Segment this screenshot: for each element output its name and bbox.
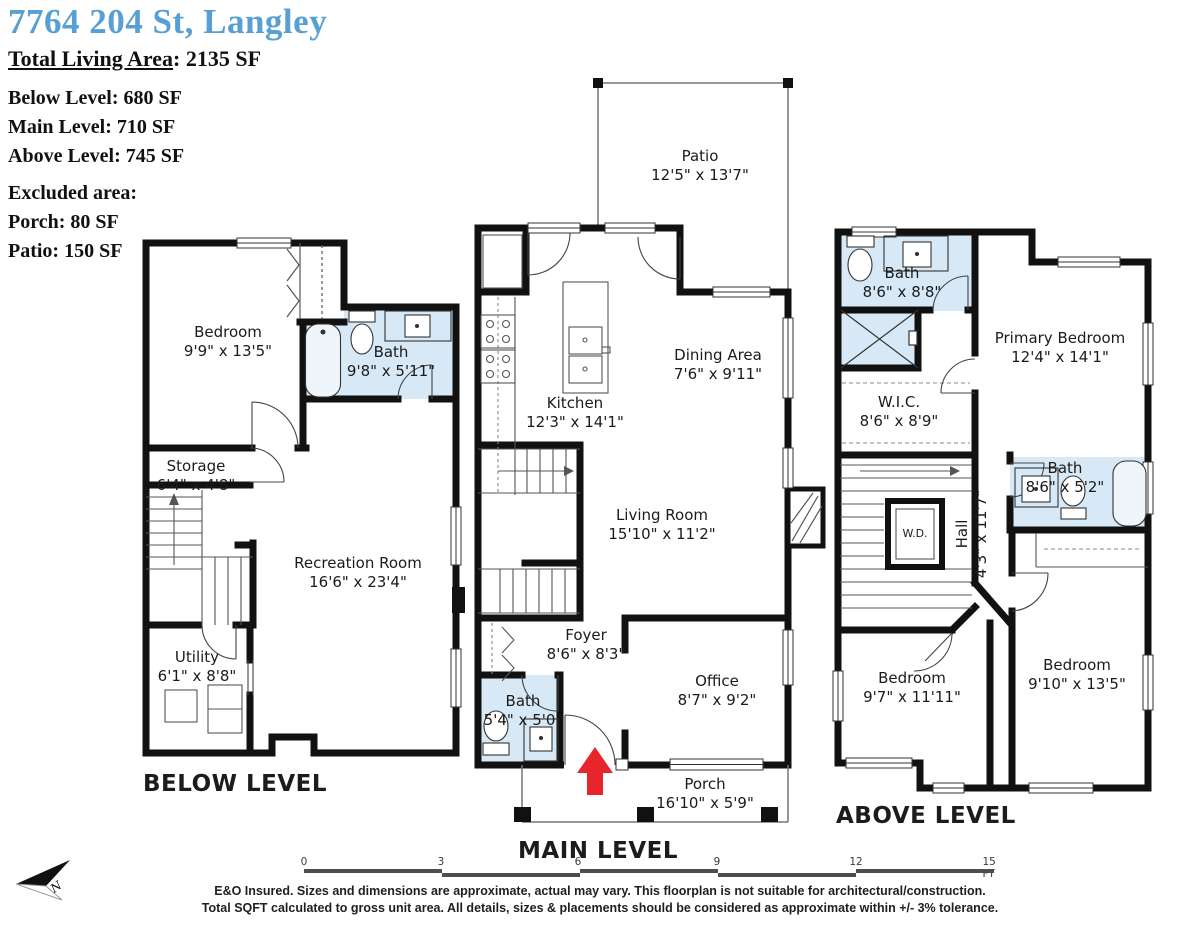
room-dims: 8'6" x 8'9" bbox=[860, 412, 939, 431]
scale-segment bbox=[856, 869, 994, 873]
scale-tick: 0 bbox=[301, 856, 308, 868]
room-name: Storage bbox=[157, 457, 236, 476]
chimney-bump bbox=[452, 587, 465, 613]
room-dims: 8'6" x 8'3" bbox=[547, 645, 626, 664]
disclaimer: E&O Insured. Sizes and dimensions are ap… bbox=[20, 883, 1180, 917]
room-name: Bath bbox=[347, 343, 435, 362]
room-label-utility: Utility 6'1" x 8'8" bbox=[158, 648, 237, 686]
below-area-line: Below Level: 680 SF bbox=[8, 84, 438, 113]
below-level-plan: Bedroom 9'9" x 13'5" Bath 9'8" x 5'11" S… bbox=[140, 235, 465, 800]
room-label-porch: Porch 16'10" x 5'9" bbox=[656, 775, 754, 813]
room-label-dining: Dining Area 7'6" x 9'11" bbox=[674, 346, 762, 384]
room-name: Recreation Room bbox=[294, 554, 422, 573]
room-name: W.I.C. bbox=[860, 393, 939, 412]
scale-segment bbox=[718, 873, 856, 877]
room-label-kitchen: Kitchen 12'3" x 14'1" bbox=[526, 394, 624, 432]
room-label-primary-bedroom: Primary Bedroom 12'4" x 14'1" bbox=[995, 329, 1126, 367]
room-dims: 12'5" x 13'7" bbox=[651, 166, 749, 185]
page-title: 7764 204 St, Langley bbox=[8, 2, 438, 42]
floorplan-page: 7764 204 St, Langley Total Living Area: … bbox=[0, 0, 1200, 927]
toilet-tank bbox=[1061, 508, 1086, 519]
room-name: Bedroom bbox=[863, 669, 961, 688]
above-area-line: Above Level: 745 SF bbox=[8, 142, 438, 171]
room-dims: 12'4" x 14'1" bbox=[995, 348, 1126, 367]
room-name: Patio bbox=[651, 147, 749, 166]
excluded-title: Excluded area: bbox=[8, 179, 438, 208]
room-dims: 9'9" x 13'5" bbox=[184, 342, 272, 361]
excluded-porch-line: Porch: 80 SF bbox=[8, 208, 438, 237]
main-level-label: MAIN LEVEL bbox=[518, 838, 678, 864]
scale-segment bbox=[580, 869, 718, 873]
toilet-tank bbox=[847, 236, 874, 247]
room-name: Kitchen bbox=[526, 394, 624, 413]
bathtub bbox=[1113, 461, 1146, 526]
total-value: : 2135 SF bbox=[173, 46, 261, 71]
room-dims: 15'10" x 11'2" bbox=[608, 525, 715, 544]
room-name: Bath bbox=[863, 264, 942, 283]
room-label-foyer: Foyer 8'6" x 8'3" bbox=[547, 626, 626, 664]
room-dims: 5'4" x 5'0" bbox=[484, 711, 563, 730]
room-dims: 16'10" x 5'9" bbox=[656, 794, 754, 813]
room-dims: 12'3" x 14'1" bbox=[526, 413, 624, 432]
scale-tick: 9 bbox=[714, 856, 721, 868]
main-level-plan: Patio 12'5" x 13'7" Kitchen 12'3" x 14'1… bbox=[470, 75, 830, 865]
room-name: Utility bbox=[158, 648, 237, 667]
above-level-label: ABOVE LEVEL bbox=[836, 803, 1016, 829]
room-label-bedroom: Bedroom 9'9" x 13'5" bbox=[184, 323, 272, 361]
room-dims: 4'3" x 11'7" bbox=[972, 490, 991, 578]
room-label-bedroom-right: Bedroom 9'10" x 13'5" bbox=[1028, 656, 1126, 694]
room-name: Foyer bbox=[547, 626, 626, 645]
bathtub bbox=[306, 324, 341, 397]
room-dims: 8'6" x 8'8" bbox=[863, 283, 942, 302]
disclaimer-line2: Total SQFT calculated to gross unit area… bbox=[20, 900, 1180, 917]
room-dims: 9'10" x 13'5" bbox=[1028, 675, 1126, 694]
room-label-bath2: Bath 8'6" x 5'2" bbox=[1026, 459, 1105, 497]
room-label-bedroom-left: Bedroom 9'7" x 11'11" bbox=[863, 669, 961, 707]
room-label-bath1: Bath 8'6" x 8'8" bbox=[863, 264, 942, 302]
room-dims: 9'8" x 5'11" bbox=[347, 362, 435, 381]
room-label-storage: Storage 6'4" x 4'8" bbox=[157, 457, 236, 495]
scale-tick: 12 bbox=[849, 856, 862, 868]
room-name: Porch bbox=[656, 775, 754, 794]
room-name: Living Room bbox=[608, 506, 715, 525]
room-name: Office bbox=[678, 672, 757, 691]
room-name: Primary Bedroom bbox=[995, 329, 1126, 348]
toilet-tank bbox=[483, 743, 509, 755]
room-name: Bath bbox=[1026, 459, 1105, 478]
room-dims: 16'6" x 23'4" bbox=[294, 573, 422, 592]
room-label-wd: W.D. bbox=[902, 528, 927, 540]
total-label: Total Living Area bbox=[8, 46, 173, 71]
room-label-bath: Bath 5'4" x 5'0" bbox=[484, 692, 563, 730]
room-dims: 8'7" x 9'2" bbox=[678, 691, 757, 710]
above-level-plan: Bath 8'6" x 8'8" Primary Bedroom 12'4" x… bbox=[832, 225, 1154, 825]
room-label-office: Office 8'7" x 9'2" bbox=[678, 672, 757, 710]
room-label-wic: W.I.C. 8'6" x 8'9" bbox=[860, 393, 939, 431]
room-name: Bath bbox=[484, 692, 563, 711]
disclaimer-line1: E&O Insured. Sizes and dimensions are ap… bbox=[20, 883, 1180, 900]
scale-segment bbox=[304, 869, 442, 873]
room-dims: 6'4" x 4'8" bbox=[157, 476, 236, 495]
header: 7764 204 St, Langley Total Living Area: … bbox=[8, 0, 438, 266]
toilet-tank bbox=[349, 311, 375, 322]
room-name: Bedroom bbox=[1028, 656, 1126, 675]
scale-tick: 3 bbox=[438, 856, 445, 868]
scale-segment bbox=[442, 873, 580, 877]
room-name: W.D. bbox=[902, 528, 927, 540]
scale-tick: 15 FT bbox=[983, 856, 1008, 880]
room-label-bath: Bath 9'8" x 5'11" bbox=[347, 343, 435, 381]
room-dims: 6'1" x 8'8" bbox=[158, 667, 237, 686]
room-label-hall: Hall 4'3" x 11'7" bbox=[953, 490, 991, 578]
room-name: Dining Area bbox=[674, 346, 762, 365]
room-name: Hall bbox=[953, 490, 972, 578]
below-level-label: BELOW LEVEL bbox=[143, 771, 327, 797]
room-dims: 8'6" x 5'2" bbox=[1026, 478, 1105, 497]
main-area-line: Main Level: 710 SF bbox=[8, 113, 438, 142]
above-level-floorplan bbox=[832, 225, 1154, 825]
total-living-area: Total Living Area: 2135 SF bbox=[8, 46, 438, 72]
room-dims: 9'7" x 11'11" bbox=[863, 688, 961, 707]
room-label-living: Living Room 15'10" x 11'2" bbox=[608, 506, 715, 544]
room-label-patio: Patio 12'5" x 13'7" bbox=[651, 147, 749, 185]
main-level-floorplan bbox=[470, 75, 830, 865]
fireplace bbox=[788, 489, 823, 546]
room-dims: 7'6" x 9'11" bbox=[674, 365, 762, 384]
room-name: Bedroom bbox=[184, 323, 272, 342]
room-label-recreation: Recreation Room 16'6" x 23'4" bbox=[294, 554, 422, 592]
below-level-floorplan bbox=[140, 235, 465, 800]
